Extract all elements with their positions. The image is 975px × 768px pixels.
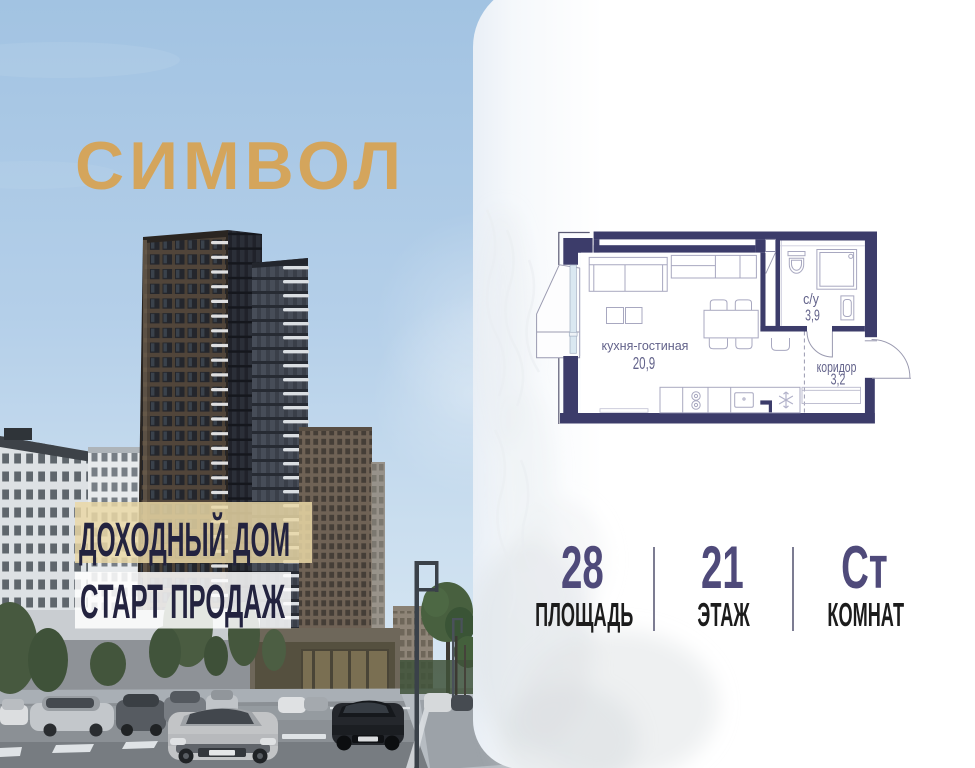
svg-text:20,9: 20,9: [633, 355, 655, 374]
svg-text:3,2: 3,2: [831, 370, 846, 388]
svg-text:кухня-гостиная: кухня-гостиная: [602, 338, 689, 353]
svg-text:3,9: 3,9: [805, 306, 820, 324]
svg-text:с/у: с/у: [803, 291, 819, 307]
